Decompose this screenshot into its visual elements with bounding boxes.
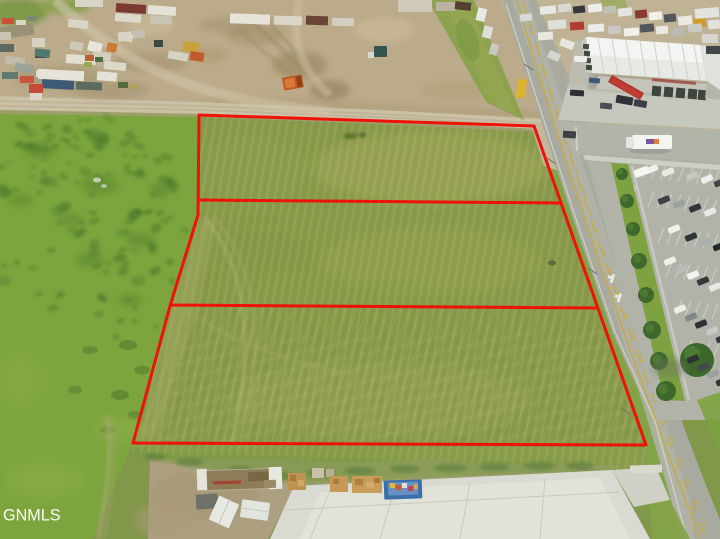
svg-text:GNMLS: GNMLS: [3, 507, 61, 525]
